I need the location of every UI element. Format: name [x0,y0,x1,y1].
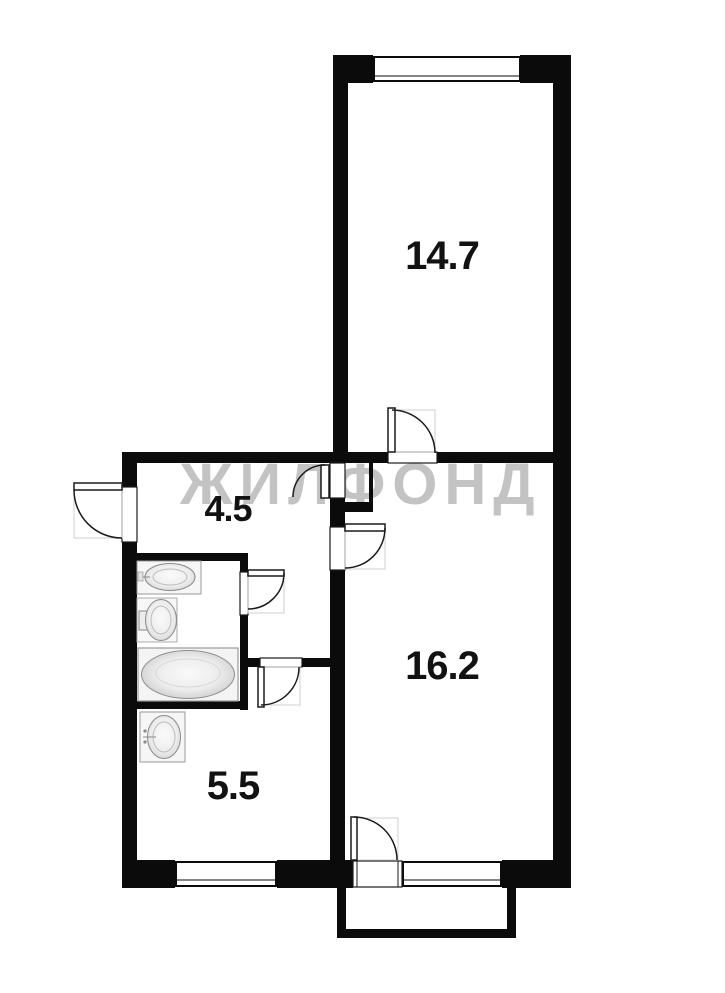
kitchen-window [176,862,276,886]
floor-plan: ЖИЛФОНД [0,0,725,993]
door-leaf [258,667,264,707]
bathroom-door [240,570,284,615]
wall [437,452,553,463]
bathroom-wall [137,553,248,561]
door-leaf [388,408,395,452]
wall [122,452,388,463]
door-arc [261,667,299,705]
door-threshold [388,452,437,463]
balcony-outline [337,888,516,938]
door-arc [293,465,325,497]
door-threshold [240,572,248,615]
room-label-hall: 4.5 [178,491,278,527]
bathroom-wall [137,701,248,709]
bedroom-window [374,57,520,81]
balcony-wall [337,929,516,938]
door-leaf [74,483,122,490]
bedroom-door [388,408,437,463]
wall [553,55,571,888]
bathroom-wall [240,553,248,572]
room-label-living: 16.2 [377,646,507,686]
wall [122,452,137,487]
wall [502,860,571,888]
door-threshold [330,463,345,498]
door-leaf [321,465,329,498]
door-swing-box [248,575,284,613]
door-arc [74,490,122,538]
closet-door [293,463,345,498]
wall [122,542,137,888]
wall [248,658,260,667]
balcony-window [403,862,501,886]
sink-icon [137,561,201,594]
bathroom-wall [240,615,248,710]
door-threshold [330,527,345,570]
kitchen-sink-icon [140,712,185,762]
wall [333,55,348,463]
balcony-door [351,817,402,887]
floor-plan-drawing [0,0,725,993]
door-leaf [248,570,284,576]
bathtub-icon [138,648,238,701]
walls-layer [122,55,571,888]
wall [302,658,332,667]
wall [122,860,175,888]
room-label-kitchen: 5.5 [183,766,283,806]
living-room-door [330,524,385,570]
closet-bottom-wall [330,502,373,512]
toilet-icon [137,598,177,642]
door-leaf [351,817,357,860]
door-arc [248,573,284,609]
door-leaf [345,524,385,531]
door-threshold [260,658,302,667]
wall [277,860,353,888]
wall [330,570,345,860]
room-label-bedroom: 14.7 [377,236,507,276]
kitchen-door [258,658,302,707]
door-arc [354,817,397,860]
door-arc [392,410,435,453]
fixtures-layer [137,561,238,762]
entrance-door [74,483,137,542]
door-swing-box [74,488,122,538]
door-threshold [122,487,137,542]
door-threshold [353,861,402,887]
closet-side-wall [369,461,373,506]
door-arc [345,528,385,568]
